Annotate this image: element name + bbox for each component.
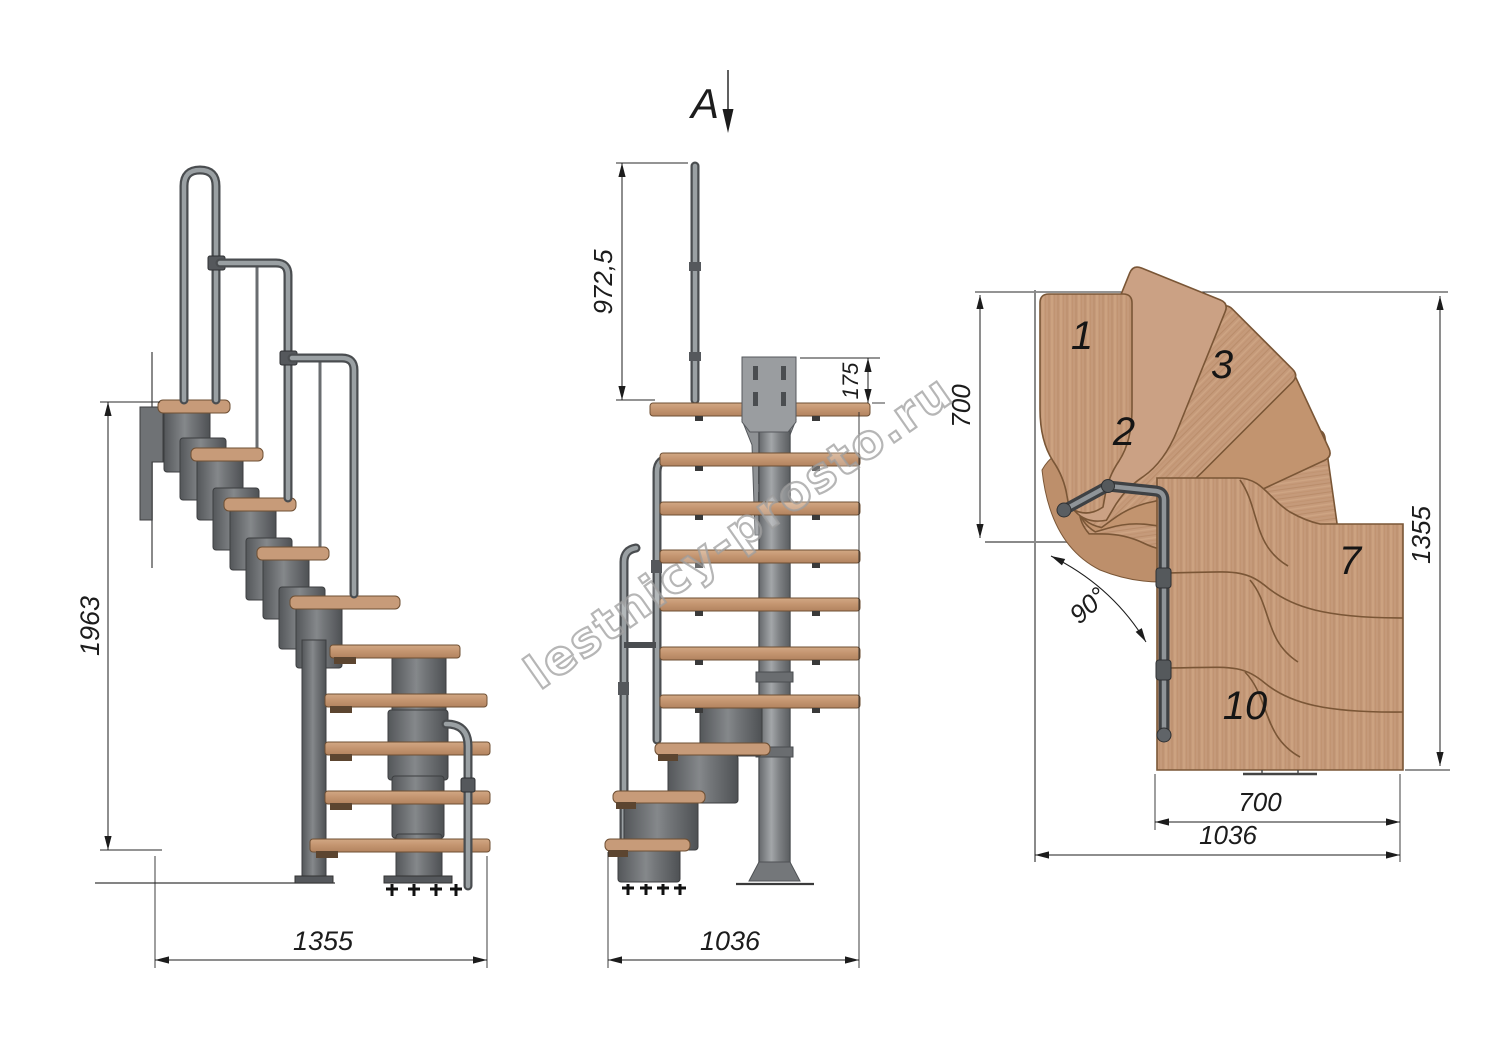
staircase-drawing: A: [0, 0, 1500, 1061]
step-number-10: 10: [1223, 684, 1268, 728]
rail-joint: [689, 352, 701, 361]
dim-side-height-text: 1963: [75, 596, 105, 656]
rail-joint: [461, 778, 475, 792]
side-elevation-view: 1963 1355: [75, 170, 490, 968]
anchor-bolts: [622, 884, 686, 895]
dim-plan-flight-width-text: 700: [1238, 787, 1282, 817]
dim-plan-length: 1355: [1405, 296, 1450, 770]
dim-turn-angle-text: 90°: [1063, 581, 1112, 630]
section-arrowhead: [723, 109, 734, 133]
step-number-1: 1: [1071, 314, 1093, 358]
dim-plan-flight-width: 700: [1155, 774, 1400, 862]
mounting-plate: [742, 357, 796, 432]
rail-end-cap: [1057, 503, 1071, 517]
anchor-bolts: [386, 884, 462, 896]
section-arrow-a: A: [688, 70, 734, 133]
rail-joint: [689, 262, 701, 271]
dim-plate-height-text: 175: [838, 362, 863, 399]
section-label: A: [688, 80, 719, 127]
dim-plan-length-text: 1355: [1406, 506, 1436, 564]
dim-plan-total-width-text: 1036: [1199, 820, 1257, 850]
dim-plate-height: 175: [800, 358, 885, 403]
drawing-svg: A: [0, 0, 1500, 1061]
rail-joint: [1156, 568, 1171, 588]
dim-front-width-text: 1036: [700, 926, 761, 956]
plan-view: 1 2 3 7 10 700 90° 1355 700: [946, 265, 1450, 862]
dim-side-width-text: 1355: [293, 926, 354, 956]
wall-bracket: [140, 407, 163, 520]
step-number-2: 2: [1112, 410, 1135, 454]
rail-elbow: [1102, 480, 1115, 493]
plan-block: [1157, 478, 1403, 770]
rail-end-cap: [1157, 728, 1171, 742]
step-number-3: 3: [1211, 343, 1233, 387]
rail-joint: [618, 682, 629, 695]
dim-rail-height: 972,5: [588, 163, 688, 400]
dim-plan-total-width: 1036: [1035, 820, 1400, 855]
step-number-7: 7: [1339, 539, 1363, 583]
base-plate: [384, 876, 452, 883]
dim-rail-height-text: 972,5: [588, 249, 618, 315]
rail-joint: [1156, 660, 1171, 680]
